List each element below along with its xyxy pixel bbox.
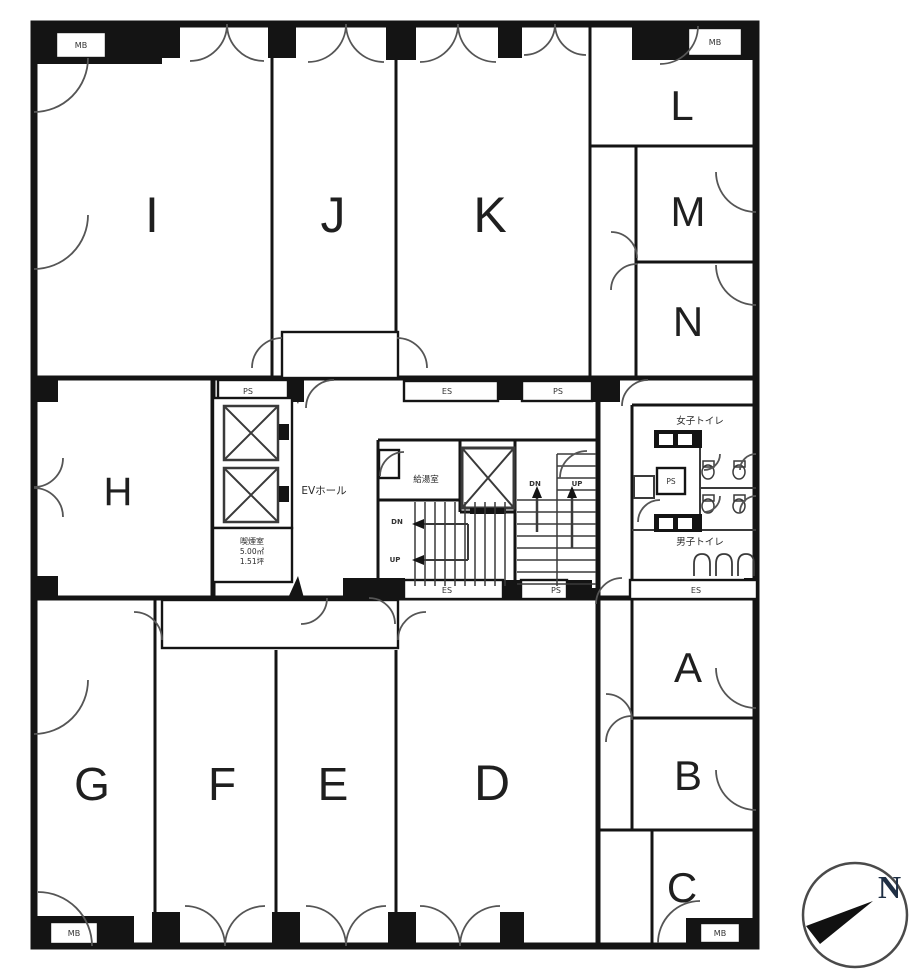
void-lower (162, 600, 398, 648)
janitor-sink (634, 476, 654, 498)
sink-top-2 (678, 434, 692, 445)
es-shaft-bottom-left: ES (442, 586, 452, 595)
interior-walls (34, 24, 758, 946)
es-shaft-top: ES (442, 387, 452, 396)
womens-toilet-label: 女子トイレ (676, 415, 724, 427)
ps-shaft-top-right: PS (553, 387, 563, 396)
ps-shaft-bottom: PS (551, 586, 561, 595)
smoking-room: 喫煙室 5.00㎡ 1.51坪 (213, 528, 292, 582)
elevator-car-3 (462, 448, 514, 514)
sink-bottom-1 (659, 518, 673, 529)
mb-bottom-left-label: MB (68, 929, 80, 938)
compass-north-label: N (878, 869, 901, 905)
stair-right-up-label: UP (572, 480, 583, 488)
toilet-block: 女子トイレ 男子トイレ (632, 415, 756, 576)
compass: N (803, 863, 907, 967)
room-label-h: H (104, 470, 133, 514)
room-label-n: N (673, 298, 703, 345)
elevator-bank (213, 398, 514, 528)
room-label-i: I (145, 187, 159, 243)
stair-left: DN UP (390, 502, 505, 586)
smoking-room-area-m2: 5.00㎡ (240, 547, 265, 556)
room-label-c: C (667, 864, 697, 911)
room-label-j: J (321, 187, 346, 243)
smoking-room-label: 喫煙室 (240, 536, 264, 546)
stair-left-up-label: UP (390, 556, 401, 564)
compass-needle (806, 901, 873, 944)
room-label-l: L (670, 82, 693, 129)
mb-top-left-label: MB (75, 41, 87, 50)
ps-shaft-toilet: PS (666, 477, 676, 486)
stair-left-dn-label: DN (391, 518, 403, 526)
core-labels: EVホール 給湯室 (301, 474, 439, 497)
void-upper (282, 332, 398, 378)
ps-shaft-top-left: PS (243, 387, 253, 396)
room-label-f: F (208, 758, 236, 810)
room-label-a: A (674, 644, 702, 691)
room-labels: I J K L M N H G F E D A B C (74, 82, 705, 911)
room-label-b: B (674, 752, 702, 799)
stair-right-dn-label: DN (529, 480, 541, 488)
mb-bottom-right-label: MB (714, 929, 726, 938)
service-shafts: PS ES PS ES PS ES PS (218, 380, 757, 599)
room-label-e: E (318, 758, 349, 810)
kitchenette-label: 給湯室 (413, 474, 439, 485)
room-label-m: M (671, 188, 706, 235)
room-label-d: D (474, 755, 510, 811)
sink-top-1 (659, 434, 673, 445)
room-label-k: K (473, 187, 506, 243)
room-label-g: G (74, 758, 110, 810)
floor-plan-page: MB MB MB MB PS ES PS ES PS ES PS (0, 0, 924, 980)
es-shaft-bottom-right: ES (691, 586, 701, 595)
mens-toilet-label: 男子トイレ (676, 537, 724, 548)
urinals (694, 554, 754, 576)
floor-plan-svg: MB MB MB MB PS ES PS ES PS ES PS (0, 0, 924, 980)
ev-hall-label: EVホール (301, 485, 346, 497)
mb-top-right-label: MB (709, 38, 721, 47)
smoking-room-area-tsubo: 1.51坪 (240, 557, 265, 566)
sink-bottom-2 (678, 518, 692, 529)
stair-right: DN UP (517, 454, 596, 586)
